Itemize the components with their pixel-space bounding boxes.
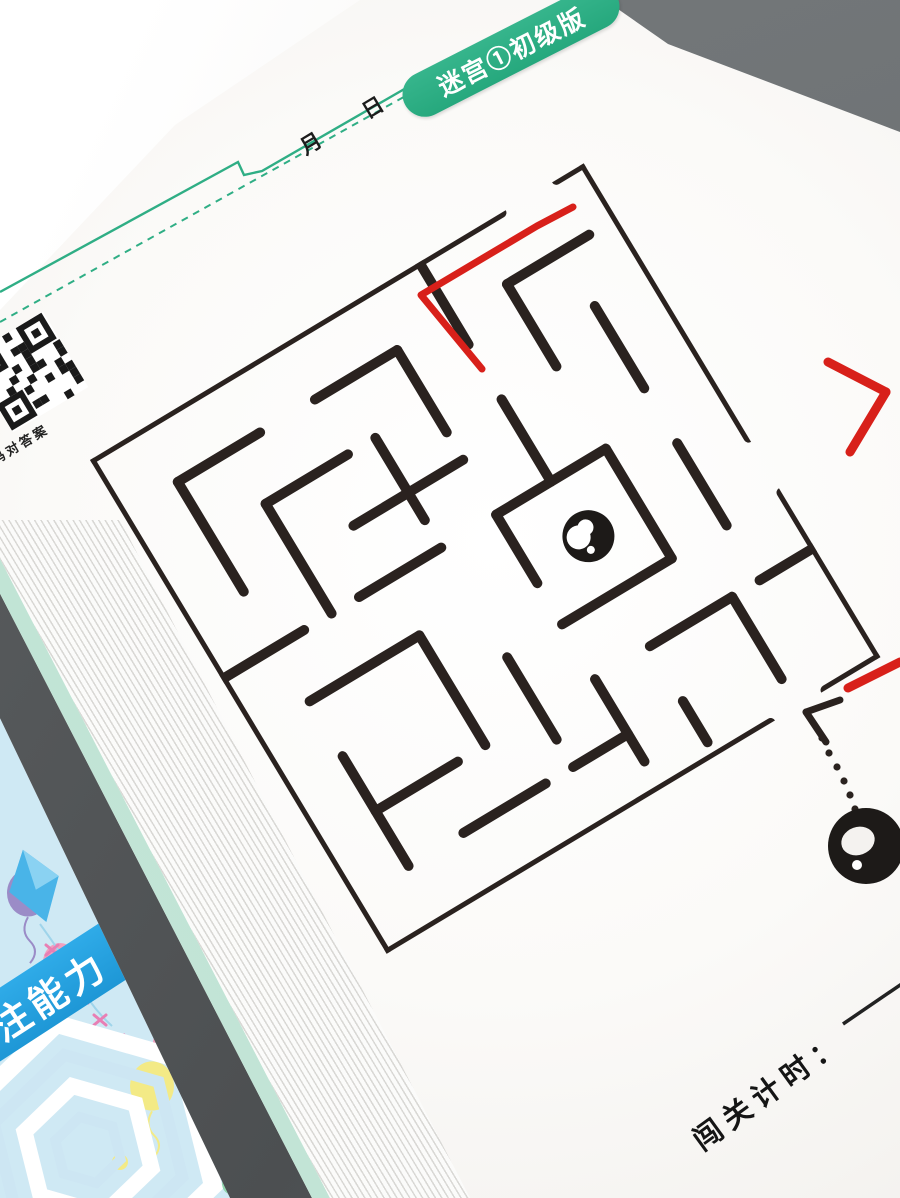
photo-maze-workbook: 专注能力 月 日 迷宫①初级版 扫码对答案 闯关计时： bbox=[0, 0, 900, 1198]
